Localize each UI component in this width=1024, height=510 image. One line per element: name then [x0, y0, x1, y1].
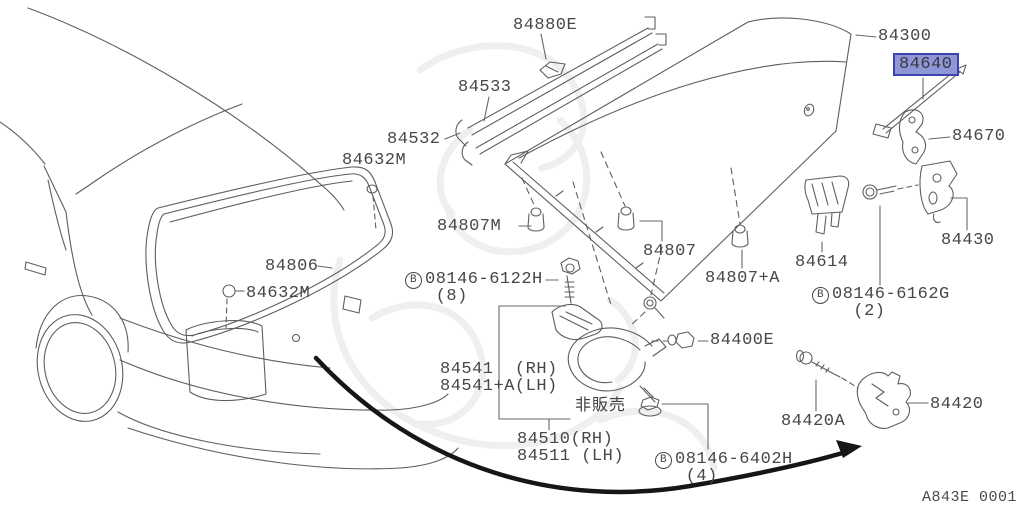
part-label-84632M-bottom[interactable]: 84632M: [246, 285, 310, 302]
part-label-84533[interactable]: 84533: [458, 79, 512, 96]
part-label-08146-6402H-text: 08146-6402H (4): [675, 451, 793, 485]
note-not-for-sale-text: 非販売: [575, 396, 626, 413]
part-label-84632M-top-text: 84632M: [342, 152, 406, 169]
part-label-84670-text: 84670: [952, 128, 1006, 145]
part-label-84420[interactable]: 84420: [930, 396, 984, 413]
part-label-84400E-text: 84400E: [710, 332, 774, 349]
part-label-84614-text: 84614: [795, 254, 849, 271]
part-label-84807[interactable]: 84807: [643, 243, 697, 260]
part-label-84806[interactable]: 84806: [265, 258, 319, 275]
part-label-84807A-text: 84807+A: [705, 270, 780, 287]
part-label-84420A[interactable]: 84420A: [781, 413, 845, 430]
part-label-84807-text: 84807: [643, 243, 697, 260]
part-label-84510-text: 84510(RH) 84511 (LH): [517, 431, 624, 465]
part-label-84541[interactable]: 84541 (RH) 84541+A(LH): [440, 361, 558, 395]
part-label-08146-6162G-text: 08146-6162G (2): [832, 286, 950, 320]
part-label-84670[interactable]: 84670: [952, 128, 1006, 145]
part-label-84532[interactable]: 84532: [387, 131, 441, 148]
part-label-08146-6122H-text: 08146-6122H (8): [425, 271, 543, 305]
part-label-84807A[interactable]: 84807+A: [705, 270, 780, 287]
part-label-08146-6122H[interactable]: B08146-6122H (8): [405, 271, 543, 305]
part-label-84300[interactable]: 84300: [878, 28, 932, 45]
part-label-84806-text: 84806: [265, 258, 319, 275]
part-label-08146-6162G[interactable]: B08146-6162G (2): [812, 286, 950, 320]
part-label-84532-text: 84532: [387, 131, 441, 148]
part-label-84430[interactable]: 84430: [941, 232, 995, 249]
part-label-84632M-bottom-text: 84632M: [246, 285, 310, 302]
part-label-84614[interactable]: 84614: [795, 254, 849, 271]
part-label-84880E-text: 84880E: [513, 17, 577, 34]
circled-b-badge: B: [655, 452, 672, 469]
parts-diagram-canvas: 84880E845338453284632M843008464084670844…: [0, 0, 1024, 510]
note-not-for-sale: 非販売: [575, 396, 626, 413]
part-label-84807M[interactable]: 84807M: [437, 218, 501, 235]
part-label-84533-text: 84533: [458, 79, 512, 96]
part-label-84420A-text: 84420A: [781, 413, 845, 430]
part-label-84510[interactable]: 84510(RH) 84511 (LH): [517, 431, 624, 465]
part-label-84541-text: 84541 (RH) 84541+A(LH): [440, 361, 558, 395]
circled-b-badge: B: [812, 287, 829, 304]
part-label-84430-text: 84430: [941, 232, 995, 249]
part-label-08146-6402H[interactable]: B08146-6402H (4): [655, 451, 793, 485]
part-label-84880E[interactable]: 84880E: [513, 17, 577, 34]
diagram-code: A843E 0001: [922, 489, 1017, 506]
part-label-84632M-top[interactable]: 84632M: [342, 152, 406, 169]
part-label-84420-text: 84420: [930, 396, 984, 413]
part-label-84640-text: 84640: [899, 56, 953, 73]
part-label-84300-text: 84300: [878, 28, 932, 45]
part-label-84807M-text: 84807M: [437, 218, 501, 235]
circled-b-badge: B: [405, 272, 422, 289]
labels-layer: 84880E845338453284632M843008464084670844…: [0, 0, 1024, 510]
part-label-84640[interactable]: 84640: [893, 53, 959, 76]
part-label-84400E[interactable]: 84400E: [710, 332, 774, 349]
